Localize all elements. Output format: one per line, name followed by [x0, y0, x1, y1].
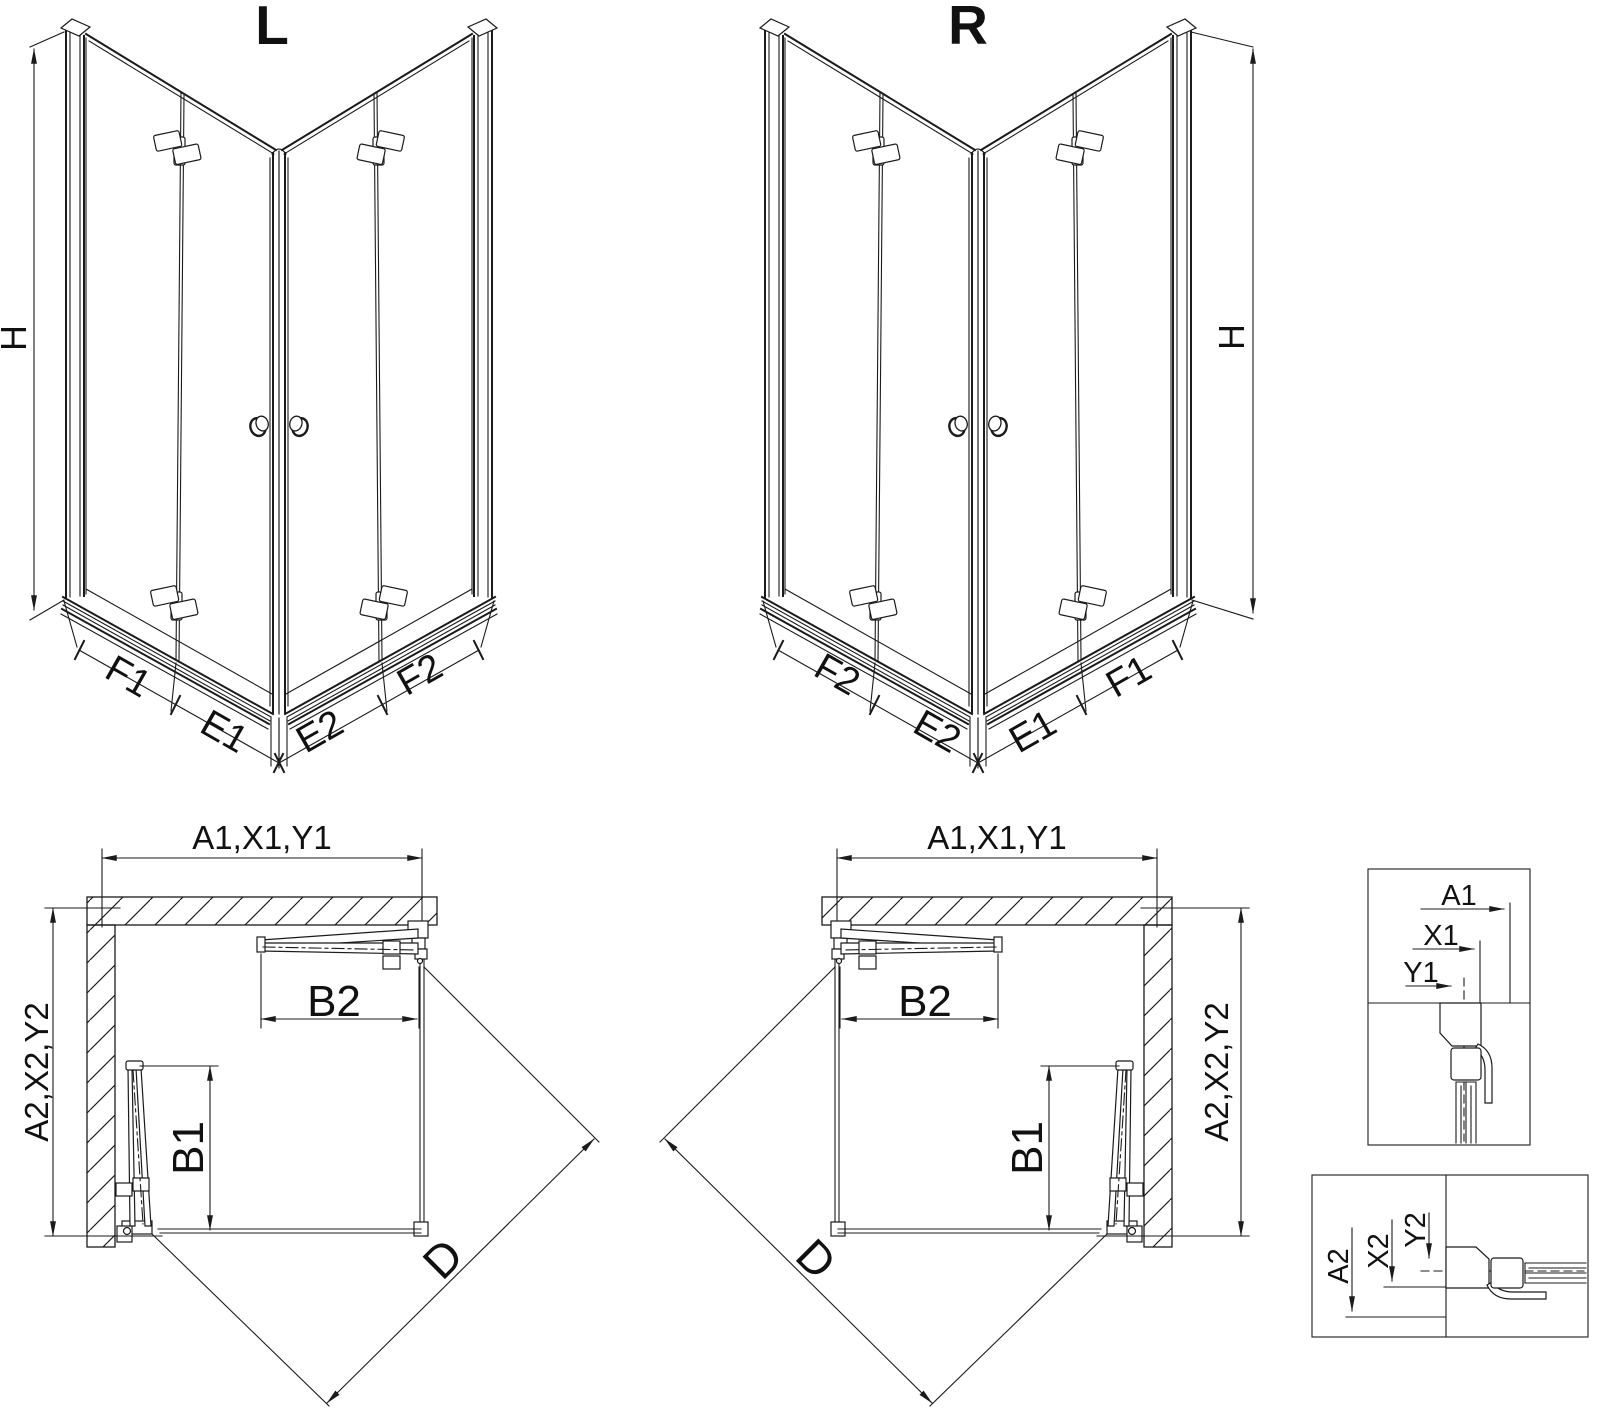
- label-b2-plan-right: B2: [898, 977, 952, 1026]
- label-d-plan-right: D: [786, 1229, 846, 1289]
- drawing-l-title: L: [255, 0, 289, 56]
- perspective-drawing-left: L H F1 E1 E2 F2: [0, 0, 497, 772]
- wall-top: [822, 897, 1172, 925]
- label-h-left: H: [0, 325, 34, 351]
- label-y1-detail: Y1: [1403, 957, 1438, 989]
- technical-drawing-page: L H F1 E1 E2 F2 R H F2 E2 E1 F1 A1,X1,Y1…: [0, 0, 1600, 1413]
- label-b1-plan-right: B1: [1003, 1121, 1052, 1175]
- detail-box-top: A1 X1 Y1: [1368, 869, 1530, 1145]
- wall-side: [1144, 925, 1172, 1247]
- wall-side: [87, 925, 115, 1247]
- perspective-drawing-right: R H F2 E2 E1 F1: [760, 0, 1253, 772]
- label-b1-plan-left: B1: [164, 1121, 213, 1175]
- label-a1-plan-right: A1,X1,Y1: [927, 819, 1066, 856]
- wall-top: [87, 897, 437, 925]
- label-y2-detail: Y2: [1400, 1212, 1432, 1247]
- drawing-r-title: R: [948, 0, 988, 56]
- label-x2-detail: X2: [1363, 1233, 1395, 1268]
- label-e2-right: E2: [906, 702, 967, 761]
- label-d-plan-left: D: [413, 1229, 473, 1289]
- label-a2-detail: A2: [1323, 1248, 1355, 1283]
- plan-view-left: A1,X1,Y1 A2,X2,Y2 B2 B1 D: [18, 819, 599, 1406]
- shower-enclosure-diagram: L H F1 E1 E2 F2 R H F2 E2 E1 F1 A1,X1,Y1…: [0, 0, 1600, 1413]
- detail-box-bottom: A2 X2 Y2: [1312, 1175, 1588, 1337]
- label-a1-detail: A1: [1441, 880, 1476, 912]
- label-b2-plan-left: B2: [307, 977, 361, 1026]
- label-e2-left: E2: [289, 702, 350, 761]
- label-h-right: H: [1211, 324, 1252, 350]
- label-a2-plan-right: A2,X2,Y2: [1198, 1002, 1235, 1141]
- plan-view-right: A1,X1,Y1 A2,X2,Y2 B2 B1 D: [660, 819, 1249, 1406]
- label-a1-plan-left: A1,X1,Y1: [192, 819, 331, 856]
- label-x1-detail: X1: [1423, 920, 1458, 952]
- label-a2-plan-left: A2,X2,Y2: [18, 1002, 55, 1141]
